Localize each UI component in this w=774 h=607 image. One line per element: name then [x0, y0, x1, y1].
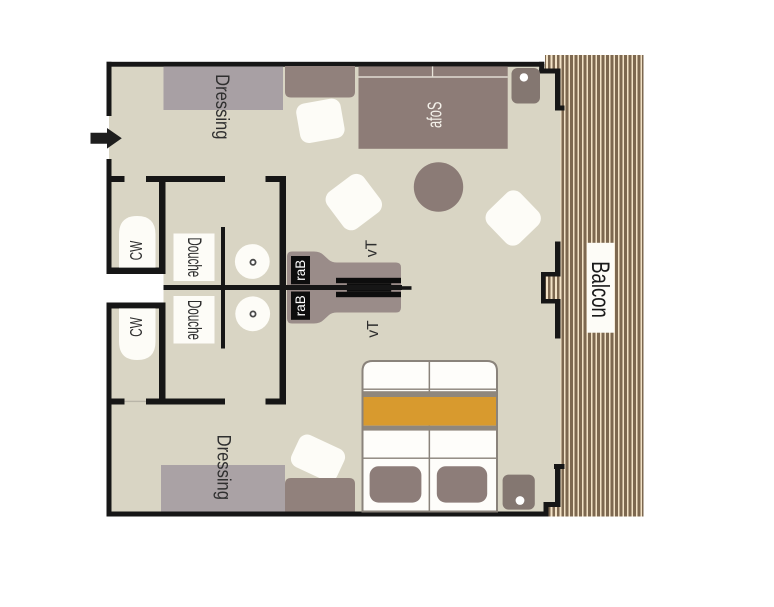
- svg-text:CW: CW: [126, 317, 146, 337]
- svg-text:CW: CW: [126, 240, 146, 260]
- svg-text:raB: raB: [293, 260, 308, 281]
- svg-text:vT: vT: [364, 239, 381, 257]
- svg-text:Douche: Douche: [183, 300, 204, 340]
- svg-text:Douche: Douche: [183, 237, 204, 277]
- svg-text:Dressing: Dressing: [213, 435, 235, 500]
- svg-text:vT: vT: [365, 320, 382, 338]
- svg-text:Balcon: Balcon: [586, 261, 614, 318]
- svg-text:Dressing: Dressing: [212, 74, 234, 139]
- svg-text:afoS: afoS: [423, 102, 446, 128]
- svg-text:raB: raB: [293, 295, 308, 316]
